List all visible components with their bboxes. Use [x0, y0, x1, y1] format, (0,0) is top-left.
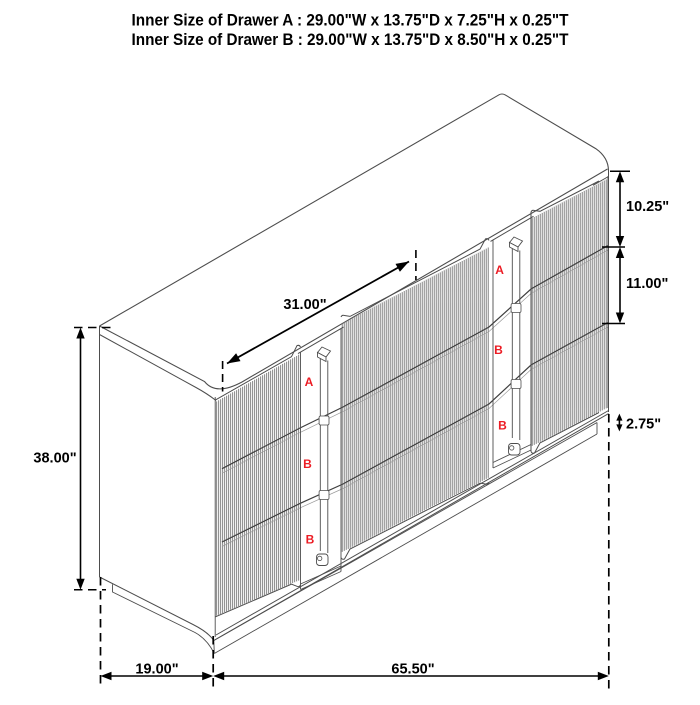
svg-text:10.25": 10.25" [626, 199, 669, 215]
svg-text:65.50": 65.50" [391, 662, 434, 678]
svg-text:B: B [494, 343, 503, 357]
svg-text:19.00": 19.00" [135, 662, 178, 678]
svg-text:A: A [305, 375, 314, 389]
svg-text:B: B [303, 457, 312, 471]
svg-text:B: B [306, 533, 315, 547]
svg-text:2.75": 2.75" [626, 417, 661, 433]
svg-text:Inner Size of Drawer A : 29.00: Inner Size of Drawer A : 29.00"W x 13.75… [132, 11, 570, 30]
svg-text:31.00": 31.00" [283, 297, 326, 313]
svg-text:Inner Size of Drawer B : 29.00: Inner Size of Drawer B : 29.00"W x 13.75… [132, 30, 570, 49]
svg-text:B: B [498, 419, 507, 433]
svg-text:38.00": 38.00" [33, 451, 76, 467]
svg-text:11.00": 11.00" [626, 276, 668, 292]
svg-text:A: A [495, 263, 504, 277]
